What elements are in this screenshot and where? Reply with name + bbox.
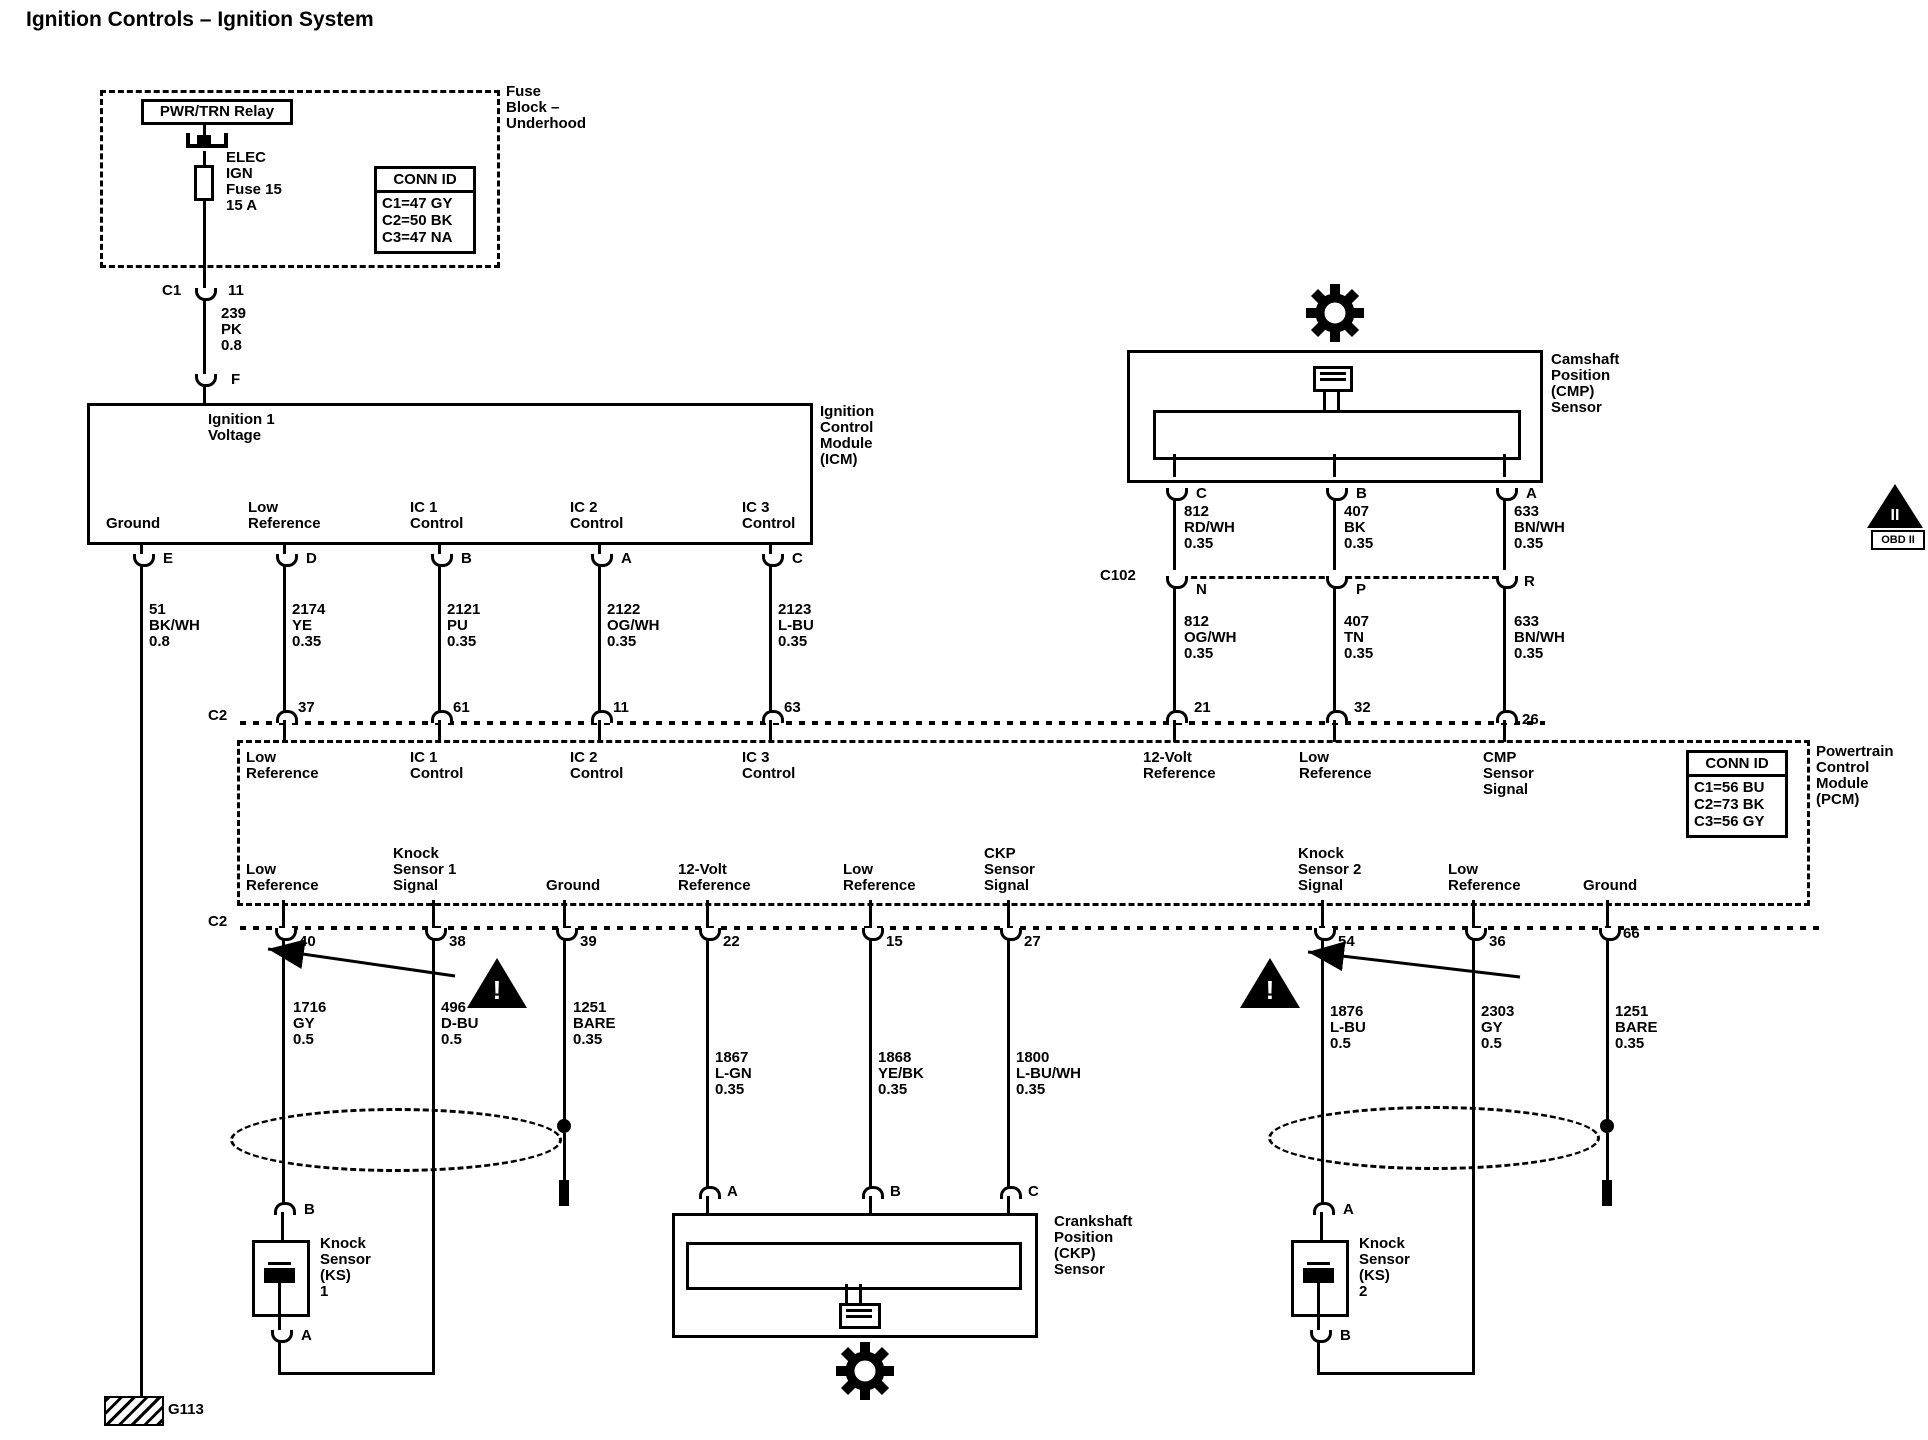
pin-number: 22 (723, 934, 740, 950)
connector-pin-arc (276, 554, 298, 567)
connector-pin-arc (276, 710, 298, 723)
wire-label: 407 BK 0.35 (1344, 504, 1373, 552)
ground-label: G113 (168, 1402, 204, 1418)
wire (203, 198, 206, 290)
pin-stub (1321, 900, 1324, 930)
wire (1503, 586, 1506, 712)
pcm-function: 12-Volt Reference (678, 862, 751, 894)
pin-letter: A (1343, 1202, 1354, 1218)
wire-label: 496 D-BU 0.5 (441, 1000, 479, 1048)
icm-function: IC 3 Control (742, 500, 795, 532)
pin-stub (438, 720, 441, 742)
pin-letter: F (231, 372, 240, 388)
pin-number: 39 (580, 934, 597, 950)
wire-1251-bare (563, 938, 566, 1123)
drain-wire-end (1602, 1180, 1612, 1206)
sensor-element-icon (1303, 1268, 1334, 1283)
wire (203, 384, 206, 405)
pin-letter: B (461, 551, 472, 567)
icm-function: IC 2 Control (570, 500, 623, 532)
fuse-label: ELEC IGN Fuse 15 15 A (226, 150, 282, 214)
conn-id-rows: C1=47 GY C2=50 BK C3=47 NA (377, 193, 473, 248)
pin-letter: B (1356, 486, 1367, 502)
pin-number: 21 (1194, 700, 1211, 716)
ckp-connector-icon (846, 1315, 872, 1318)
connector-pin-arc (556, 928, 578, 941)
gear-icon (836, 1342, 894, 1400)
ckp-element-box (686, 1242, 1022, 1290)
pcm-function: Low Reference (843, 862, 916, 894)
connector-pin-arc (1326, 488, 1348, 501)
cmp-connector-stem (1337, 392, 1340, 412)
connector-pin-arc (1326, 576, 1348, 589)
wire-label: 1867 L-GN 0.35 (715, 1050, 752, 1098)
wire-label: 407 TN 0.35 (1344, 614, 1373, 662)
connector-label: C102 (1100, 568, 1136, 584)
pin-letter: E (163, 551, 173, 567)
icm-function: Ground (106, 516, 160, 532)
conn-id-box-fuse: CONN ID C1=47 GY C2=50 BK C3=47 NA (374, 166, 476, 254)
wire-label: 633 BN/WH 0.35 (1514, 614, 1565, 662)
pin-stub (282, 900, 285, 930)
wire-label: 1251 BARE 0.35 (1615, 1004, 1658, 1052)
wire (203, 125, 206, 135)
pin-letter: A (301, 1328, 312, 1344)
pin-number: 27 (1024, 934, 1041, 950)
pin-stub (706, 900, 709, 930)
connector-pin-arc (271, 1330, 293, 1343)
connector-pin-arc (1599, 928, 1621, 941)
connector-pin-arc (699, 928, 721, 941)
cmp-connector-stem (1323, 392, 1326, 412)
pin-number: 66 (1623, 926, 1640, 942)
obd-ii-label: OBD II (1871, 530, 1925, 550)
pcm-function: Ground (1583, 878, 1637, 894)
page-title: Ignition Controls – Ignition System (26, 8, 374, 32)
wire-label: 2121 PU 0.35 (447, 602, 480, 650)
connector-label: C1 (162, 283, 181, 299)
connector-pin-arc (1326, 710, 1348, 723)
wire (598, 564, 601, 712)
connector-pin-arc (1496, 710, 1518, 723)
pcm-function: 12-Volt Reference (1143, 750, 1216, 782)
pin-stub (281, 1212, 284, 1242)
connector-pin-arc (195, 288, 217, 301)
pin-letter: D (306, 551, 317, 567)
wire (278, 1340, 281, 1375)
pin-stub (598, 720, 601, 742)
cmp-connector-icon (1320, 372, 1346, 375)
wire-1251-bare (1606, 938, 1609, 1123)
gear-icon (1306, 284, 1364, 342)
wire (1333, 586, 1336, 712)
pin-stub (1173, 720, 1176, 742)
sensor-element-icon (1317, 1283, 1320, 1311)
pin-stub (432, 900, 435, 930)
pin-number: 26 (1522, 712, 1539, 728)
pcm-function: IC 3 Control (742, 750, 795, 782)
connector-pin-arc (1313, 1202, 1335, 1215)
pcm-function: IC 1 Control (410, 750, 463, 782)
connector-pin-arc (1166, 488, 1188, 501)
pin-letter: B (304, 1202, 315, 1218)
sensor-element-icon (264, 1268, 295, 1283)
twisted-pair-arrow (250, 938, 465, 983)
pcm-function: Low Reference (246, 862, 319, 894)
pin-letter: C (1028, 1184, 1039, 1200)
connector-pin-arc (762, 710, 784, 723)
connector-label: C2 (208, 914, 227, 930)
wire-label: 2174 YE 0.35 (292, 602, 325, 650)
wire-label: 1868 YE/BK 0.35 (878, 1050, 924, 1098)
pcm-function: CKP Sensor Signal (984, 846, 1035, 894)
connector-pin-arc (862, 1186, 884, 1199)
wire-label: 812 RD/WH 0.35 (1184, 504, 1235, 552)
pin-number: 15 (886, 934, 903, 950)
twisted-pair-arrow (1290, 940, 1530, 985)
pcm-function: Ground (546, 878, 600, 894)
wire (1317, 1372, 1475, 1375)
pin-stub (1333, 454, 1336, 477)
pcm-function: Low Reference (1299, 750, 1372, 782)
shield-ellipse (230, 1108, 562, 1172)
icm-label: Ignition Control Module (ICM) (820, 404, 874, 468)
pin-letter: A (1526, 486, 1537, 502)
pcm-function: Low Reference (246, 750, 319, 782)
pcm-function: Knock Sensor 1 Signal (393, 846, 456, 894)
connector-pin-arc (862, 928, 884, 941)
wire (1503, 498, 1506, 570)
pin-stub (869, 900, 872, 930)
wire (278, 1372, 435, 1375)
pin-stub (563, 900, 566, 930)
pcm-function: Low Reference (1448, 862, 1521, 894)
fuse-block-label: Fuse Block – Underhood (506, 84, 586, 132)
pin-number: 32 (1354, 700, 1371, 716)
sensor-element-icon (1307, 1262, 1330, 1265)
pin-stub (1503, 720, 1506, 742)
cmp-sensor-label: Camshaft Position (CMP) Sensor (1551, 352, 1619, 416)
pin-stub (278, 1311, 281, 1332)
shield-ellipse (1268, 1106, 1600, 1170)
pin-letter: R (1524, 574, 1535, 590)
icm-function: IC 1 Control (410, 500, 463, 532)
connector-label: C2 (208, 708, 227, 724)
pin-letter: C (792, 551, 803, 567)
ckp-connector-stem (859, 1284, 862, 1305)
wire (769, 564, 772, 712)
wire-label: 812 OG/WH 0.35 (1184, 614, 1237, 662)
wire (438, 564, 441, 712)
pin-letter: A (727, 1184, 738, 1200)
ckp-connector-icon (846, 1309, 872, 1312)
pin-stub (1472, 900, 1475, 930)
wire-label: 239 PK 0.8 (221, 306, 246, 354)
connector-pin-arc (133, 554, 155, 567)
connector-pin-arc (274, 1202, 296, 1215)
conn-id-title: CONN ID (1689, 753, 1785, 777)
connector-pin-arc (1000, 1186, 1022, 1199)
wire-1800-lbuwh (1007, 938, 1010, 1188)
pin-stub (1173, 454, 1176, 477)
connector-pin-arc (1496, 576, 1518, 589)
wire (203, 151, 206, 165)
pcm-function: Knock Sensor 2 Signal (1298, 846, 1361, 894)
pin-number: 61 (453, 700, 470, 716)
pin-letter: C (1196, 486, 1207, 502)
knock-sensor-2-label: Knock Sensor (KS) 2 (1359, 1236, 1410, 1300)
connector-pin-arc (591, 710, 613, 723)
cmp-element-box (1153, 410, 1521, 460)
conn-id-title: CONN ID (377, 169, 473, 193)
pin-letter: B (1340, 1328, 1351, 1344)
pin-stub (1007, 900, 1010, 930)
wire-label: 1716 GY 0.5 (293, 1000, 326, 1048)
wiring-diagram: Ignition Controls – Ignition System PWR/… (0, 0, 1928, 1440)
relay-plug-icon (197, 135, 211, 145)
pcm-function: CMP Sensor Signal (1483, 750, 1534, 798)
wire (1606, 1133, 1609, 1182)
wire-239-pk (203, 298, 206, 376)
pin-letter: P (1356, 582, 1366, 598)
ground-icon (104, 1396, 164, 1426)
wire-label: 1876 L-BU 0.5 (1330, 1004, 1366, 1052)
connector-pin-arc (1496, 488, 1518, 501)
ckp-connector-stem (845, 1284, 848, 1305)
pin-number: 37 (298, 700, 315, 716)
connector-pin-arc (195, 374, 217, 387)
connector-line (240, 926, 1820, 930)
wire-1867-lgn (706, 938, 709, 1188)
pwr-trn-relay-box: PWR/TRN Relay (141, 99, 293, 125)
wire-label: 1251 BARE 0.35 (573, 1000, 616, 1048)
pin-letter: B (890, 1184, 901, 1200)
wire (283, 564, 286, 712)
fuse-icon (194, 165, 214, 201)
connector-pin-arc (431, 554, 453, 567)
connector-pin-arc (1000, 928, 1022, 941)
wire-label: 2303 GY 0.5 (1481, 1004, 1514, 1052)
obd-ii-numeral: II (1867, 502, 1923, 530)
pin-stub (1333, 720, 1336, 742)
pin-number: 11 (613, 700, 629, 716)
icm-input-label: Ignition 1 Voltage (208, 412, 275, 444)
wire-51-ground (140, 564, 143, 1397)
connector-pin-arc (1166, 710, 1188, 723)
pin-stub (283, 720, 286, 742)
pin-letter: A (621, 551, 632, 567)
knock-sensor-1-label: Knock Sensor (KS) 1 (320, 1236, 371, 1300)
wire (1333, 498, 1336, 570)
wire-label: 51 BK/WH 0.8 (149, 602, 200, 650)
wire-label: 2122 OG/WH 0.35 (607, 602, 660, 650)
connector-pin-arc (431, 710, 453, 723)
connector-pin-arc (762, 554, 784, 567)
wire (1317, 1340, 1320, 1375)
wire-1868-yebk (869, 938, 872, 1188)
pin-stub (769, 720, 772, 742)
wire (1173, 586, 1176, 712)
ckp-sensor-label: Crankshaft Position (CKP) Sensor (1054, 1214, 1132, 1278)
pin-stub (1317, 1311, 1320, 1332)
wire (1173, 498, 1176, 570)
sensor-element-icon (278, 1283, 281, 1311)
wire-label: 1800 L-BU/WH 0.35 (1016, 1050, 1081, 1098)
connector-pin-arc (1166, 576, 1188, 589)
pcm-function: IC 2 Control (570, 750, 623, 782)
splice-dot (557, 1119, 571, 1133)
pin-stub (1320, 1212, 1323, 1242)
wire (563, 1133, 566, 1182)
icm-function: Low Reference (248, 500, 321, 532)
conn-id-box-pcm: CONN ID C1=56 BU C2=73 BK C3=56 GY (1686, 750, 1788, 838)
drain-wire-end (559, 1180, 569, 1206)
pin-number: 63 (784, 700, 801, 716)
wire-label: 633 BN/WH 0.35 (1514, 504, 1565, 552)
wire-label: 2123 L-BU 0.35 (778, 602, 814, 650)
pin-number: 11 (228, 283, 244, 299)
sensor-element-icon (268, 1262, 291, 1265)
connector-pin-arc (699, 1186, 721, 1199)
pin-stub (1503, 454, 1506, 477)
pin-letter: N (1196, 582, 1207, 598)
cmp-connector-icon (1320, 378, 1346, 381)
connector-pin-arc (1310, 1330, 1332, 1343)
pin-stub (1606, 900, 1609, 930)
pcm-label: Powertrain Control Module (PCM) (1816, 744, 1894, 808)
connector-pin-arc (591, 554, 613, 567)
splice-dot (1600, 1119, 1614, 1133)
conn-id-rows: C1=56 BU C2=73 BK C3=56 GY (1689, 777, 1785, 832)
